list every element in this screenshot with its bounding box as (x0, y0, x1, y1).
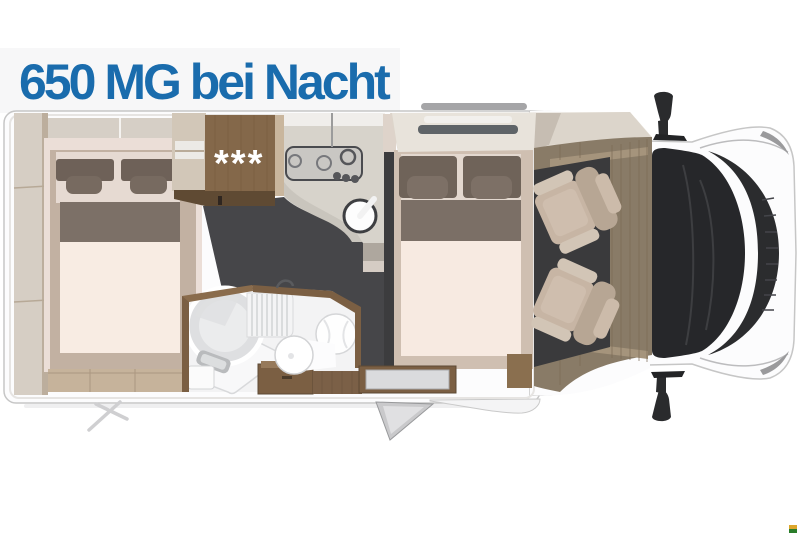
svg-text:650 MG bei Nacht: 650 MG bei Nacht (19, 54, 391, 110)
svg-text:***: *** (214, 143, 264, 185)
